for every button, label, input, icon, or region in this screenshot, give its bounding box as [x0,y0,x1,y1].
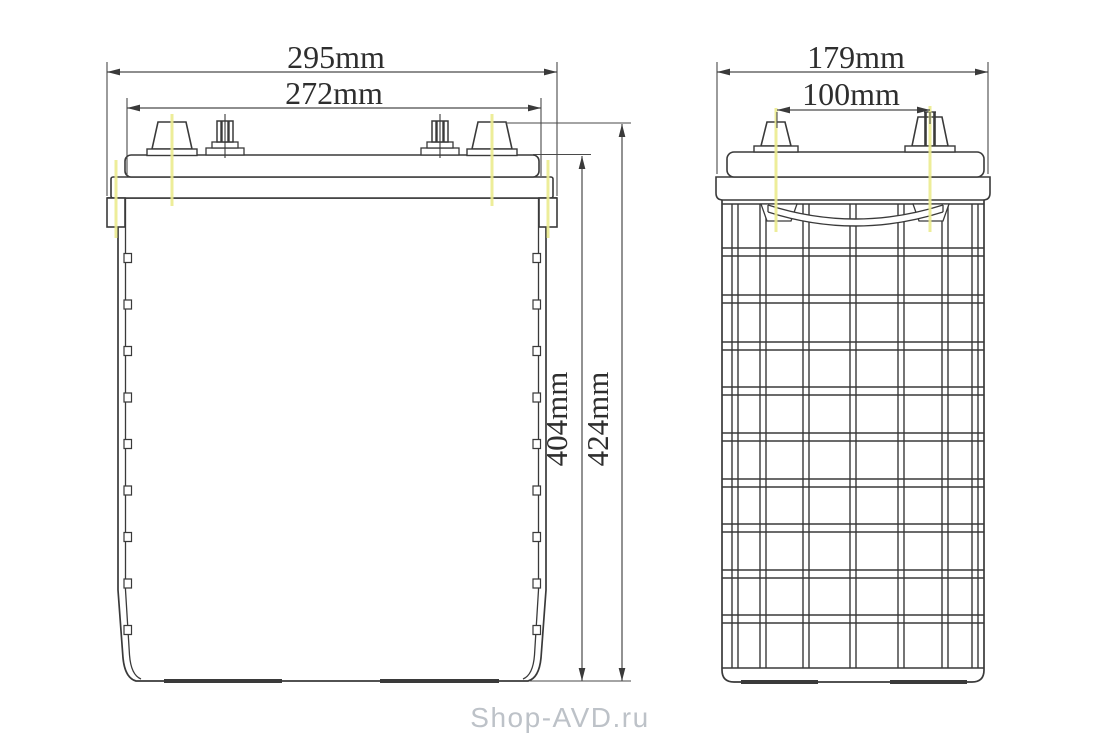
battery-dimension-drawing: 295mm 272mm 404mm 424mm [0,0,1120,741]
front-bolt-terminal-right [421,114,459,158]
side-carry-handle [761,204,949,226]
side-grid-horizontals [722,204,984,668]
front-body-inner-wall [126,198,539,679]
side-lid [716,152,990,200]
dim-terminal-spacing-label: 100mm [802,76,900,112]
front-lid [107,155,557,227]
dimension-terminal-spacing: 100mm [777,76,930,128]
watermark-text: Shop-AVD.ru [470,702,649,733]
side-grid-verticals [732,204,978,668]
side-body [722,200,984,682]
front-view: 295mm 272mm 404mm 424mm [107,39,631,681]
dim-overall-width-label: 295mm [287,39,385,75]
front-terminals [147,114,517,158]
dim-overall-depth-label: 179mm [807,39,905,75]
side-lid-top-plate [727,152,984,177]
front-body [118,198,546,681]
dim-case-height-label: 404mm [539,372,574,467]
front-body-outline [118,227,546,681]
front-wall-notches [124,254,541,635]
front-lid-band [111,177,553,198]
front-lid-top-plate [125,155,539,177]
side-terminals [754,112,955,152]
side-lid-band [716,177,990,200]
drawing-canvas: 295mm 272mm 404mm 424mm [0,0,1120,741]
front-bolt-terminal-left [206,114,244,158]
dim-overall-height-label: 424mm [580,372,615,467]
side-view: 179mm 100mm [716,39,990,682]
dim-case-width-label: 272mm [285,75,383,111]
